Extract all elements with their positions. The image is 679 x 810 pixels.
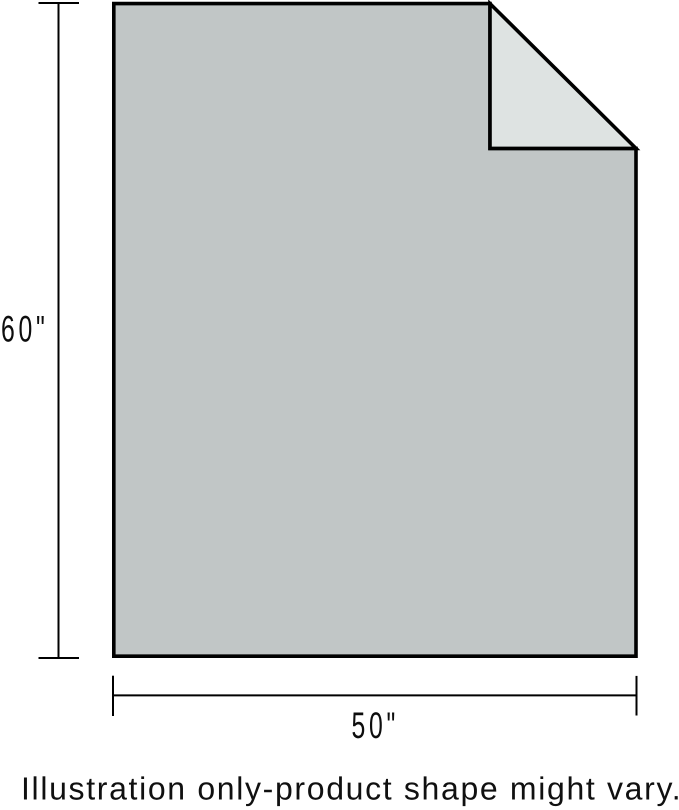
svg-text:Illustration only-product shap: Illustration only-product shape might va… bbox=[21, 771, 679, 807]
svg-text:60": 60" bbox=[1, 309, 48, 350]
svg-text:50": 50" bbox=[352, 705, 399, 746]
